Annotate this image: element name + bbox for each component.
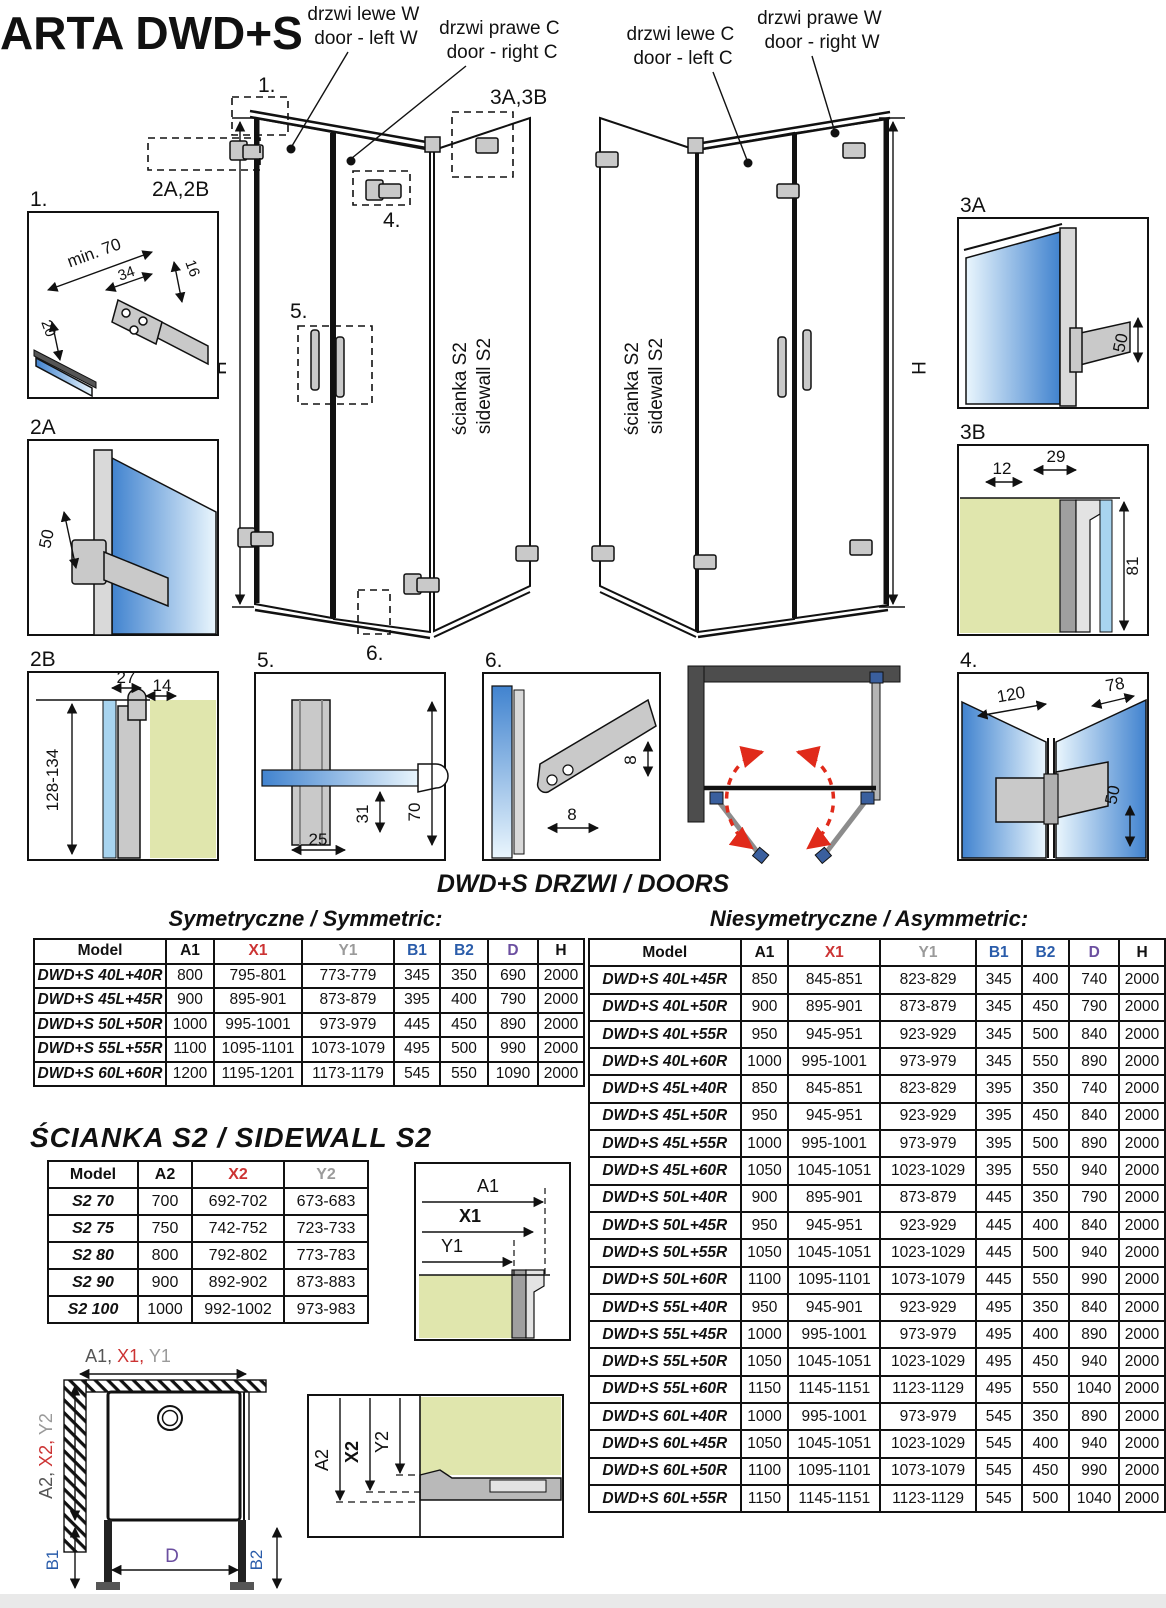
value-cell: 995-1001 [214, 1013, 302, 1038]
value-cell: 840 [1069, 1021, 1119, 1048]
value-cell: 973-979 [880, 1130, 976, 1157]
value-cell: 2000 [1119, 1458, 1165, 1485]
value-cell: 445 [976, 1239, 1022, 1266]
value-cell: 345 [976, 966, 1022, 993]
value-cell: 940 [1069, 1348, 1119, 1375]
value-cell: 2000 [1119, 1430, 1165, 1457]
value-cell: 923-929 [880, 1294, 976, 1321]
value-cell: 500 [1022, 1485, 1070, 1512]
value-cell: 995-1001 [788, 1321, 880, 1348]
table-row: DWD+S 45L+40R850845-851823-8293953507402… [589, 1075, 1165, 1102]
model-cell: DWD+S 60L+55R [589, 1485, 741, 1512]
detail-3b: 3B 12 29 81 [958, 421, 1148, 635]
value-cell: 1023-1029 [880, 1348, 976, 1375]
dim-12: 12 [993, 459, 1012, 478]
value-cell: 740 [1069, 966, 1119, 993]
dim-78: 78 [1104, 674, 1126, 696]
model-cell: DWD+S 40L+55R [589, 1021, 741, 1048]
value-cell: 495 [976, 1376, 1022, 1403]
table-row: DWD+S 55L+45R1000995-1001973-97949540089… [589, 1321, 1165, 1348]
table-row: DWD+S 50L+40R900895-901873-8794453507902… [589, 1185, 1165, 1212]
value-cell: 1045-1051 [788, 1348, 880, 1375]
value-cell: 973-979 [880, 1321, 976, 1348]
table-row: DWD+S 40L+50R900895-901873-8793454507902… [589, 994, 1165, 1021]
dim-8-vert: 8 [621, 755, 640, 764]
value-cell: 495 [394, 1037, 440, 1062]
value-cell: 1095-1101 [788, 1458, 880, 1485]
value-cell: 1145-1151 [788, 1376, 880, 1403]
value-cell: 945-951 [788, 1021, 880, 1048]
value-cell: 2000 [1119, 966, 1165, 993]
value-cell: 890 [1069, 1403, 1119, 1430]
detail-3b-label: 3B [960, 421, 986, 444]
sidewall-label-pl: ścianka S2 [622, 342, 643, 435]
value-cell: 1045-1051 [788, 1430, 880, 1457]
value-cell: 690 [488, 964, 538, 989]
detail-3a: 3A 50 [958, 194, 1148, 408]
dim-b2: B2 [247, 1550, 266, 1571]
value-cell: 345 [394, 964, 440, 989]
table-row: DWD+S 45L+50R950945-951923-9293954508402… [589, 1103, 1165, 1130]
detail-6: 6. 8 8 [483, 649, 660, 860]
table-row: DWD+S 55L+60R11501145-11511123-112949555… [589, 1376, 1165, 1403]
value-cell: 400 [1022, 1430, 1070, 1457]
model-cell: DWD+S 55L+40R [589, 1294, 741, 1321]
column-header: X1 [214, 939, 302, 964]
value-cell: 1100 [166, 1037, 214, 1062]
detail-4-label: 4. [960, 649, 978, 672]
value-cell: 550 [1022, 1376, 1070, 1403]
dim-29: 29 [1047, 447, 1066, 466]
model-cell: DWD+S 60L+60R [34, 1062, 166, 1087]
technical-drawing: H ścianka S2 sidewall S2 [0, 0, 1166, 866]
value-cell: 1040 [1069, 1376, 1119, 1403]
value-cell: 990 [1069, 1458, 1119, 1485]
model-cell: DWD+S 60L+50R [589, 1458, 741, 1485]
column-header: H [538, 939, 584, 964]
value-cell: 1100 [741, 1267, 789, 1294]
dim-128-134: 128-134 [43, 749, 62, 811]
detail-2b: 2B 27 14 128-134 [28, 648, 218, 860]
callout-5: 5. [290, 300, 308, 323]
column-header: B2 [1022, 939, 1070, 966]
value-cell: 1000 [166, 1013, 214, 1038]
detail-6-label: 6. [485, 649, 503, 672]
symmetric-doors-table: ModelA1X1Y1B1B2DHDWD+S 40L+40R800795-801… [33, 938, 585, 1087]
value-cell: 395 [976, 1075, 1022, 1102]
value-cell: 400 [1022, 1212, 1070, 1239]
detail-5: 5. 31 70 25 [255, 649, 448, 860]
value-cell: 773-779 [302, 964, 394, 989]
value-cell: 2000 [1119, 1348, 1165, 1375]
label-door-right-w: drzwi prawe W door - right W [757, 8, 887, 53]
value-cell: 800 [166, 964, 214, 989]
value-cell: 1145-1151 [788, 1485, 880, 1512]
dim-25: 25 [309, 830, 328, 849]
value-cell: 445 [394, 1013, 440, 1038]
value-cell: 1000 [741, 1130, 789, 1157]
value-cell: 500 [440, 1037, 488, 1062]
model-cell: DWD+S 45L+60R [589, 1157, 741, 1184]
value-cell: 1123-1129 [880, 1485, 976, 1512]
value-cell: 545 [976, 1458, 1022, 1485]
value-cell: 2000 [1119, 1103, 1165, 1130]
value-cell: 445 [976, 1212, 1022, 1239]
value-cell: 1000 [741, 1403, 789, 1430]
value-cell: 2000 [1119, 1185, 1165, 1212]
column-header: B2 [440, 939, 488, 964]
value-cell: 823-829 [880, 1075, 976, 1102]
value-cell: 450 [440, 1013, 488, 1038]
table-row: DWD+S 45L+55R1000995-1001973-97939550089… [589, 1130, 1165, 1157]
plan-left-dims: A2, X2, Y2 [36, 1413, 56, 1499]
callout-6: 6. [366, 642, 384, 665]
dim-y1: Y1 [441, 1236, 463, 1256]
value-cell: 840 [1069, 1212, 1119, 1239]
value-cell: 940 [1069, 1239, 1119, 1266]
table-row: DWD+S 60L+60R12001195-12011173-117954555… [34, 1062, 584, 1087]
value-cell: 350 [440, 964, 488, 989]
value-cell: 2000 [1119, 994, 1165, 1021]
dim-x2: X2 [342, 1441, 362, 1463]
column-header: H [1119, 939, 1165, 966]
dim-8-horiz: 8 [567, 805, 576, 824]
value-cell: 395 [976, 1157, 1022, 1184]
model-cell: DWD+S 60L+45R [589, 1430, 741, 1457]
value-cell: 890 [1069, 1048, 1119, 1075]
sidewall-label-en: sidewall S2 [474, 338, 495, 434]
doors-section-title: DWD+S DRZWI / DOORS [0, 870, 1166, 899]
value-cell: 740 [1069, 1075, 1119, 1102]
table-row: DWD+S 55L+40R950945-901923-9294953508402… [589, 1294, 1165, 1321]
callout-4: 4. [383, 209, 401, 232]
value-cell: 895-901 [788, 994, 880, 1021]
model-cell: DWD+S 50L+45R [589, 1212, 741, 1239]
value-cell: 495 [976, 1294, 1022, 1321]
table-row: DWD+S 55L+55R11001095-11011073-107949550… [34, 1037, 584, 1062]
value-cell: 923-929 [880, 1103, 976, 1130]
value-cell: 1073-1079 [880, 1267, 976, 1294]
detail-2b-label: 2B [30, 648, 56, 671]
pivot-hinge-right [861, 792, 874, 804]
model-cell: DWD+S 50L+40R [589, 1185, 741, 1212]
value-cell: 790 [488, 988, 538, 1013]
asymmetric-table-title: Niesymetryczne / Asymmetric: [588, 906, 1150, 932]
value-cell: 2000 [1119, 1157, 1165, 1184]
value-cell: 850 [741, 966, 789, 993]
door-handle [311, 330, 319, 390]
table-row: DWD+S 60L+55R11501145-11511123-112954550… [589, 1485, 1165, 1512]
column-header: X1 [788, 939, 880, 966]
value-cell: 2000 [1119, 1294, 1165, 1321]
value-cell: 2000 [1119, 1376, 1165, 1403]
value-cell: 2000 [538, 1062, 584, 1087]
table-row: DWD+S 40L+60R1000995-1001973-97934555089… [589, 1048, 1165, 1075]
value-cell: 1090 [488, 1062, 538, 1087]
value-cell: 1023-1029 [880, 1430, 976, 1457]
value-cell: 790 [1069, 994, 1119, 1021]
value-cell: 2000 [1119, 1239, 1165, 1266]
value-cell: 345 [976, 1021, 1022, 1048]
dim-27: 27 [117, 668, 136, 687]
value-cell: 1000 [741, 1321, 789, 1348]
detail-1-label: 1. [30, 188, 48, 211]
dim-d: D [165, 1546, 179, 1567]
dim-y2: Y2 [372, 1431, 392, 1453]
value-cell: 2000 [1119, 1130, 1165, 1157]
table-header-row: ModelA1X1Y1B1B2DH [34, 939, 584, 964]
dim-31: 31 [353, 805, 372, 824]
symmetric-table-title: Symetryczne / Symmetric: [33, 906, 578, 932]
value-cell: 973-979 [880, 1403, 976, 1430]
table-row: DWD+S 40L+55R950945-951923-9293455008402… [589, 1021, 1165, 1048]
door-post-right [238, 1520, 246, 1588]
callout-1: 1. [258, 74, 276, 97]
value-cell: 395 [976, 1103, 1022, 1130]
model-cell: DWD+S 60L+40R [589, 1403, 741, 1430]
door-handle [778, 337, 786, 397]
value-cell: 400 [1022, 966, 1070, 993]
value-cell: 1050 [741, 1157, 789, 1184]
door-right-c [334, 132, 430, 632]
detail-2a-label: 2A [30, 416, 56, 439]
value-cell: 900 [741, 994, 789, 1021]
value-cell: 450 [1022, 1458, 1070, 1485]
value-cell: 500 [1022, 1130, 1070, 1157]
value-cell: 995-1001 [788, 1048, 880, 1075]
value-cell: 450 [1022, 1103, 1070, 1130]
value-cell: 1095-1101 [214, 1037, 302, 1062]
column-header: A1 [741, 939, 789, 966]
value-cell: 873-879 [880, 1185, 976, 1212]
value-cell: 923-929 [880, 1212, 976, 1239]
plan-top-dims: A1, X1, Y1 [85, 1346, 171, 1366]
value-cell: 545 [976, 1485, 1022, 1512]
model-cell: DWD+S 50L+55R [589, 1239, 741, 1266]
model-cell: DWD+S 55L+45R [589, 1321, 741, 1348]
table-row: DWD+S 50L+55R10501045-10511023-102944550… [589, 1239, 1165, 1266]
value-cell: 2000 [1119, 1021, 1165, 1048]
column-header: B1 [976, 939, 1022, 966]
value-cell: 890 [1069, 1130, 1119, 1157]
value-cell: 2000 [538, 988, 584, 1013]
value-cell: 1045-1051 [788, 1157, 880, 1184]
asymmetric-doors-table: ModelA1X1Y1B1B2DHDWD+S 40L+45R850845-851… [588, 938, 1166, 1513]
value-cell: 850 [741, 1075, 789, 1102]
value-cell: 450 [1022, 994, 1070, 1021]
door-handle [336, 337, 344, 397]
column-header: B1 [394, 939, 440, 964]
detail-1: 1. min. 70 34 16 20 [28, 188, 218, 398]
model-cell: DWD+S 45L+45R [34, 988, 166, 1013]
value-cell: 350 [1022, 1185, 1070, 1212]
value-cell: 890 [488, 1013, 538, 1038]
value-cell: 2000 [1119, 1403, 1165, 1430]
table-header-row: ModelA1X1Y1B1B2DH [589, 939, 1165, 966]
dim-50: 50 [1101, 784, 1124, 806]
value-cell: 1150 [741, 1485, 789, 1512]
dim-50: 50 [1109, 332, 1132, 354]
value-cell: 950 [741, 1103, 789, 1130]
installation-diagrams: A1 X1 Y1 A1, X1, Y1 A2, X2, Y2 [0, 1130, 600, 1608]
model-cell: DWD+S 55L+60R [589, 1376, 741, 1403]
dim-14: 14 [153, 676, 172, 695]
table-row: DWD+S 40L+40R800795-801773-7793453506902… [34, 964, 584, 989]
value-cell: 840 [1069, 1294, 1119, 1321]
column-header: Y1 [302, 939, 394, 964]
value-cell: 550 [1022, 1267, 1070, 1294]
value-cell: 345 [976, 994, 1022, 1021]
column-header: D [488, 939, 538, 964]
sidewall-label-pl: ścianka S2 [450, 342, 471, 435]
product-spec-sheet: ARTA DWD+S [0, 0, 1166, 1608]
dim-50: 50 [35, 528, 58, 550]
swing-arc-right [798, 752, 833, 848]
value-cell: 350 [1022, 1403, 1070, 1430]
model-cell: DWD+S 40L+50R [589, 994, 741, 1021]
a2-x2-y2-section: A2 X2 Y2 [308, 1395, 563, 1537]
table-row: DWD+S 40L+45R850845-851823-8293454007402… [589, 966, 1165, 993]
dim-b1: B1 [43, 1550, 62, 1571]
value-cell: 950 [741, 1212, 789, 1239]
value-cell: 1000 [741, 1048, 789, 1075]
model-cell: DWD+S 55L+50R [589, 1348, 741, 1375]
model-cell: DWD+S 40L+45R [589, 966, 741, 993]
label-door-left-w: drzwi lewe W door - left W [307, 4, 424, 49]
dim-70: 70 [405, 803, 424, 822]
callout-2ab: 2A,2B [152, 178, 209, 201]
value-cell: 395 [394, 988, 440, 1013]
table-row: DWD+S 45L+60R10501045-10511023-102939555… [589, 1157, 1165, 1184]
label-door-left-c: drzwi lewe C door - left C [627, 24, 740, 69]
value-cell: 445 [976, 1185, 1022, 1212]
value-cell: 1040 [1069, 1485, 1119, 1512]
table-row: DWD+S 50L+60R11001095-11011073-107944555… [589, 1267, 1165, 1294]
value-cell: 500 [1022, 1021, 1070, 1048]
value-cell: 2000 [1119, 1267, 1165, 1294]
model-cell: DWD+S 50L+50R [34, 1013, 166, 1038]
table-row: DWD+S 50L+50R1000995-1001973-97944545089… [34, 1013, 584, 1038]
value-cell: 2000 [538, 964, 584, 989]
value-cell: 990 [488, 1037, 538, 1062]
page-edge-band [0, 1594, 1166, 1608]
model-cell: DWD+S 55L+55R [34, 1037, 166, 1062]
sidewall-label-en: sidewall S2 [646, 338, 667, 434]
detail-2a: 2A 50 [28, 416, 218, 635]
value-cell: 550 [1022, 1157, 1070, 1184]
value-cell: 940 [1069, 1157, 1119, 1184]
value-cell: 1173-1179 [302, 1062, 394, 1087]
table-row: DWD+S 60L+45R10501045-10511023-102954540… [589, 1430, 1165, 1457]
door-swing-plan [688, 666, 900, 863]
value-cell: 1150 [741, 1376, 789, 1403]
value-cell: 395 [976, 1130, 1022, 1157]
callout-3ab: 3A,3B [490, 86, 547, 109]
value-cell: 545 [976, 1430, 1022, 1457]
table-row: DWD+S 55L+50R10501045-10511023-102949545… [589, 1348, 1165, 1375]
value-cell: 1023-1029 [880, 1239, 976, 1266]
value-cell: 2000 [1119, 1485, 1165, 1512]
value-cell: 495 [976, 1348, 1022, 1375]
value-cell: 500 [1022, 1239, 1070, 1266]
model-cell: DWD+S 45L+50R [589, 1103, 741, 1130]
value-cell: 2000 [1119, 1048, 1165, 1075]
column-header: Model [589, 939, 741, 966]
value-cell: 873-879 [880, 994, 976, 1021]
tray-plan-diagram: A1, X1, Y1 A2, X2, Y2 B1 B2 D [36, 1346, 277, 1590]
value-cell: 1100 [741, 1458, 789, 1485]
value-cell: 345 [976, 1048, 1022, 1075]
value-cell: 550 [1022, 1048, 1070, 1075]
column-header: D [1069, 939, 1119, 966]
value-cell: 1050 [741, 1348, 789, 1375]
value-cell: 550 [440, 1062, 488, 1087]
value-cell: 890 [1069, 1321, 1119, 1348]
model-cell: DWD+S 50L+60R [589, 1267, 741, 1294]
value-cell: 900 [741, 1185, 789, 1212]
value-cell: 940 [1069, 1430, 1119, 1457]
value-cell: 873-879 [302, 988, 394, 1013]
value-cell: 2000 [538, 1013, 584, 1038]
value-cell: 900 [166, 988, 214, 1013]
value-cell: 2000 [1119, 1321, 1165, 1348]
value-cell: 350 [1022, 1294, 1070, 1321]
value-cell: 795-801 [214, 964, 302, 989]
value-cell: 845-851 [788, 1075, 880, 1102]
value-cell: 950 [741, 1021, 789, 1048]
value-cell: 845-851 [788, 966, 880, 993]
value-cell: 923-929 [880, 1021, 976, 1048]
value-cell: 995-1001 [788, 1130, 880, 1157]
value-cell: 1050 [741, 1430, 789, 1457]
value-cell: 790 [1069, 1185, 1119, 1212]
value-cell: 895-901 [214, 988, 302, 1013]
value-cell: 2000 [538, 1037, 584, 1062]
pivot-hinge-left [710, 792, 723, 804]
value-cell: 840 [1069, 1103, 1119, 1130]
value-cell: 1073-1079 [302, 1037, 394, 1062]
value-cell: 995-1001 [788, 1403, 880, 1430]
model-cell: DWD+S 45L+40R [589, 1075, 741, 1102]
door-handle [803, 330, 811, 390]
value-cell: 973-979 [880, 1048, 976, 1075]
value-cell: 823-829 [880, 966, 976, 993]
value-cell: 990 [1069, 1267, 1119, 1294]
value-cell: 1095-1101 [788, 1267, 880, 1294]
value-cell: 1023-1029 [880, 1157, 976, 1184]
detail-5-label: 5. [257, 649, 275, 672]
value-cell: 545 [976, 1403, 1022, 1430]
value-cell: 1045-1051 [788, 1239, 880, 1266]
model-cell: DWD+S 40L+40R [34, 964, 166, 989]
height-dim-right: H [907, 361, 928, 375]
value-cell: 1200 [166, 1062, 214, 1087]
value-cell: 2000 [1119, 1212, 1165, 1239]
value-cell: 400 [440, 988, 488, 1013]
model-cell: DWD+S 45L+55R [589, 1130, 741, 1157]
value-cell: 2000 [1119, 1075, 1165, 1102]
table-row: DWD+S 50L+45R950945-951923-9294454008402… [589, 1212, 1165, 1239]
dim-81: 81 [1123, 557, 1142, 576]
door-post-left [104, 1520, 112, 1588]
value-cell: 973-979 [302, 1013, 394, 1038]
value-cell: 445 [976, 1267, 1022, 1294]
dim-a2: A2 [312, 1449, 332, 1471]
dim-x1: X1 [459, 1206, 481, 1226]
value-cell: 495 [976, 1321, 1022, 1348]
value-cell: 1073-1079 [880, 1458, 976, 1485]
value-cell: 450 [1022, 1348, 1070, 1375]
